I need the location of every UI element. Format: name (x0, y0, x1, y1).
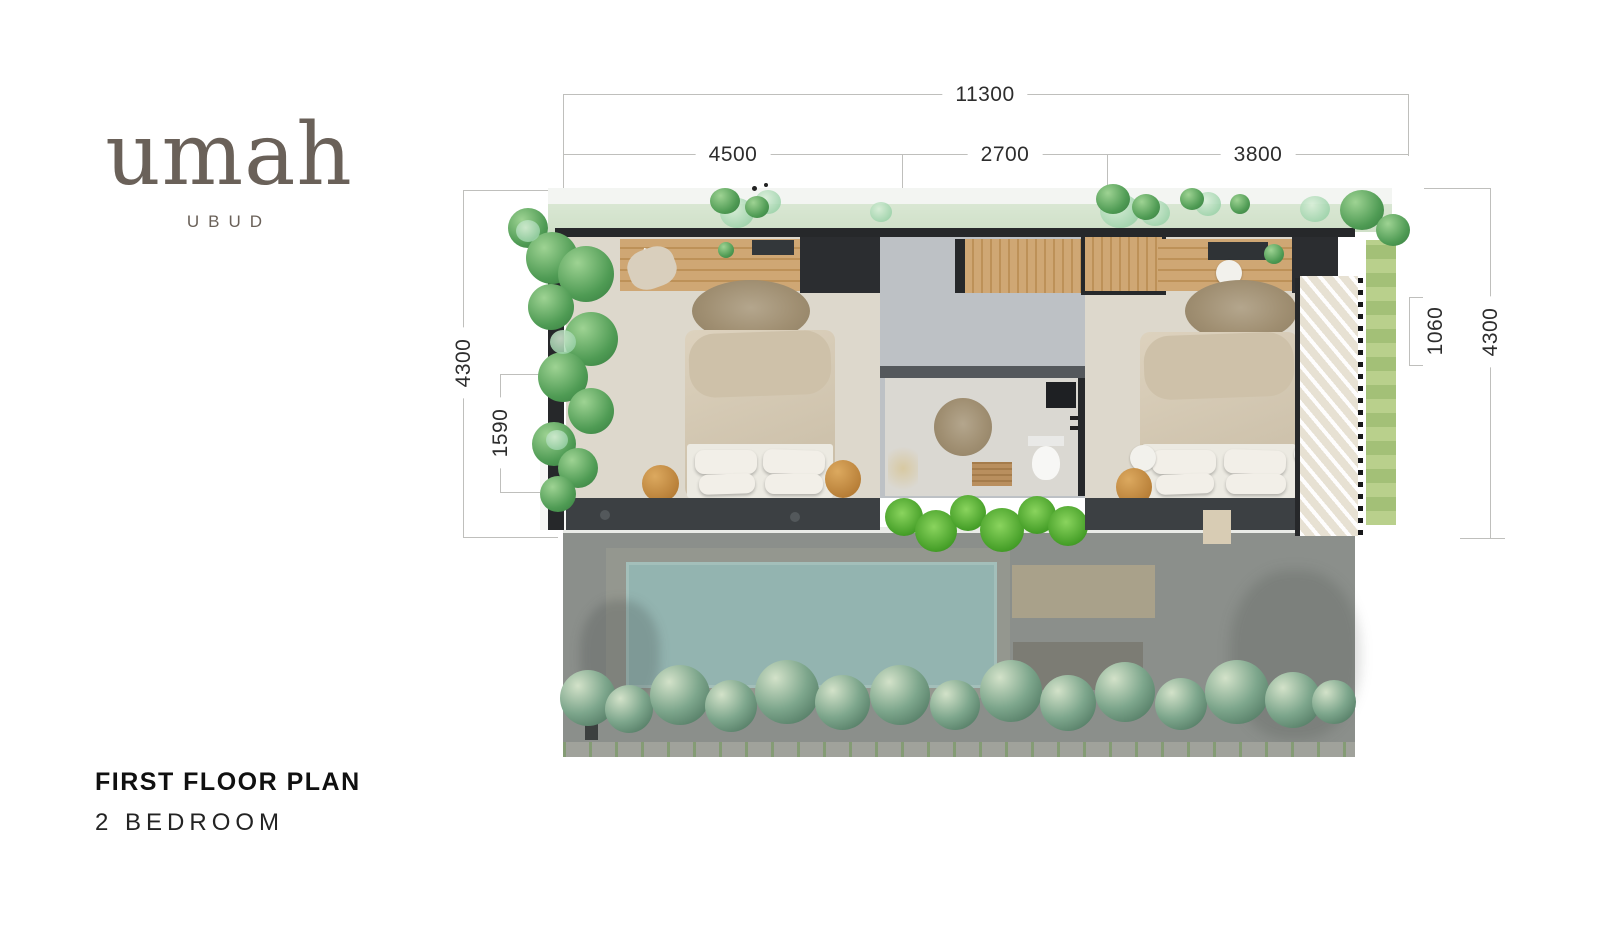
bed-pillow (1156, 473, 1215, 495)
dim-tick (1424, 188, 1490, 189)
brand-location: UBUD (88, 212, 370, 232)
bathroom-plant (888, 442, 918, 490)
dim-ext (1408, 94, 1409, 156)
page-title: FIRST FLOOR PLAN (95, 768, 361, 797)
walkway-wood (1085, 237, 1162, 291)
curtain-dotted-line (1358, 278, 1363, 536)
desk-left-plant (718, 242, 734, 258)
wall-top (555, 228, 1355, 237)
dim-label-core: 2700 (968, 142, 1043, 168)
brand-logo: umah UBUD (88, 112, 370, 232)
desk-left-monitor (752, 240, 794, 255)
terrace-bench (1203, 510, 1231, 544)
bed-pillow (1152, 450, 1216, 474)
plant-overhang (1230, 194, 1250, 214)
dim-line-deck-right (1409, 297, 1410, 365)
bed-pillow (699, 473, 756, 495)
bed-pillow (695, 450, 757, 474)
plant-bush (540, 476, 576, 512)
stair-wall (955, 239, 965, 293)
dim-label-deck-right: 1060 (1423, 296, 1449, 367)
bathroom-rug (934, 398, 992, 456)
plant-accent (546, 430, 568, 450)
bed-pillow (765, 474, 823, 494)
plant-leaf (930, 680, 980, 730)
plant-leaf (705, 680, 757, 732)
plant-accent (550, 330, 576, 354)
plant-leaf (815, 675, 870, 730)
bed-headrest (1143, 331, 1295, 400)
plant-leaf (870, 665, 930, 725)
plant-overhang (710, 188, 740, 214)
sun-mat-light (1012, 565, 1155, 618)
shower-head (1046, 382, 1076, 408)
floor-plan (540, 180, 1400, 780)
terrace-left (566, 498, 880, 530)
plant-overhang (745, 196, 769, 218)
dim-label-bed-left: 4500 (696, 142, 771, 168)
core-divider-wall (880, 366, 1085, 378)
plan-title-block: FIRST FLOOR PLAN 2 BEDROOM (95, 768, 361, 837)
plant-bush (568, 388, 614, 434)
plant-leaf (1312, 680, 1356, 724)
plant-leaf (1205, 660, 1269, 724)
dim-tick (463, 190, 551, 191)
plant-leaf (1155, 678, 1207, 730)
pouf (642, 465, 679, 502)
plant-leaf (1095, 662, 1155, 722)
roof-leaf (870, 202, 892, 222)
desk-right-plant (1264, 244, 1284, 264)
plant-leaf (650, 665, 710, 725)
plant-overhang (1096, 184, 1130, 214)
dim-ext (563, 94, 564, 190)
bed-pillow (763, 449, 826, 475)
toilet-tank (1028, 436, 1064, 446)
plant-bush (528, 284, 574, 330)
plant-accent (516, 220, 540, 242)
wardrobe-left (800, 237, 880, 293)
dim-label-bed-right: 3800 (1221, 142, 1296, 168)
bath-mat-wood (972, 462, 1012, 486)
planter-strip-right (1366, 240, 1396, 525)
dim-label-depth-left: 4300 (451, 328, 477, 399)
plant-bush (1376, 214, 1410, 246)
side-deck (1300, 276, 1358, 536)
grass-strip (563, 742, 1355, 757)
dim-label-depth-right: 4300 (1478, 297, 1504, 368)
plant-leaf (755, 660, 819, 724)
dim-label-overall: 11300 (942, 82, 1027, 108)
terrace-light (790, 512, 800, 522)
plant-tuft (1048, 506, 1088, 546)
plant-leaf (980, 660, 1042, 722)
toilet (1032, 446, 1060, 480)
plant-overhang (1132, 194, 1160, 220)
roof-leaf (1300, 196, 1330, 222)
dim-label-terrace-left: 1590 (488, 398, 514, 469)
bed-headrest (688, 330, 832, 399)
roof-bird (764, 183, 768, 187)
page-subtitle: 2 BEDROOM (95, 809, 361, 837)
staircase (965, 239, 1085, 293)
bed-pillow (1224, 449, 1287, 475)
bed-pillow (1226, 474, 1286, 494)
desk-right-monitor (1208, 242, 1268, 260)
bed-right (1140, 332, 1298, 498)
brand-name: umah (88, 112, 370, 198)
roof-bird (752, 186, 757, 191)
plant-overhang (1180, 188, 1204, 210)
plant-leaf (1040, 675, 1096, 731)
bed-left (685, 330, 835, 498)
pouf (825, 460, 861, 498)
dim-tick (1460, 538, 1505, 539)
terrace-light (600, 510, 610, 520)
plant-leaf (605, 685, 653, 733)
